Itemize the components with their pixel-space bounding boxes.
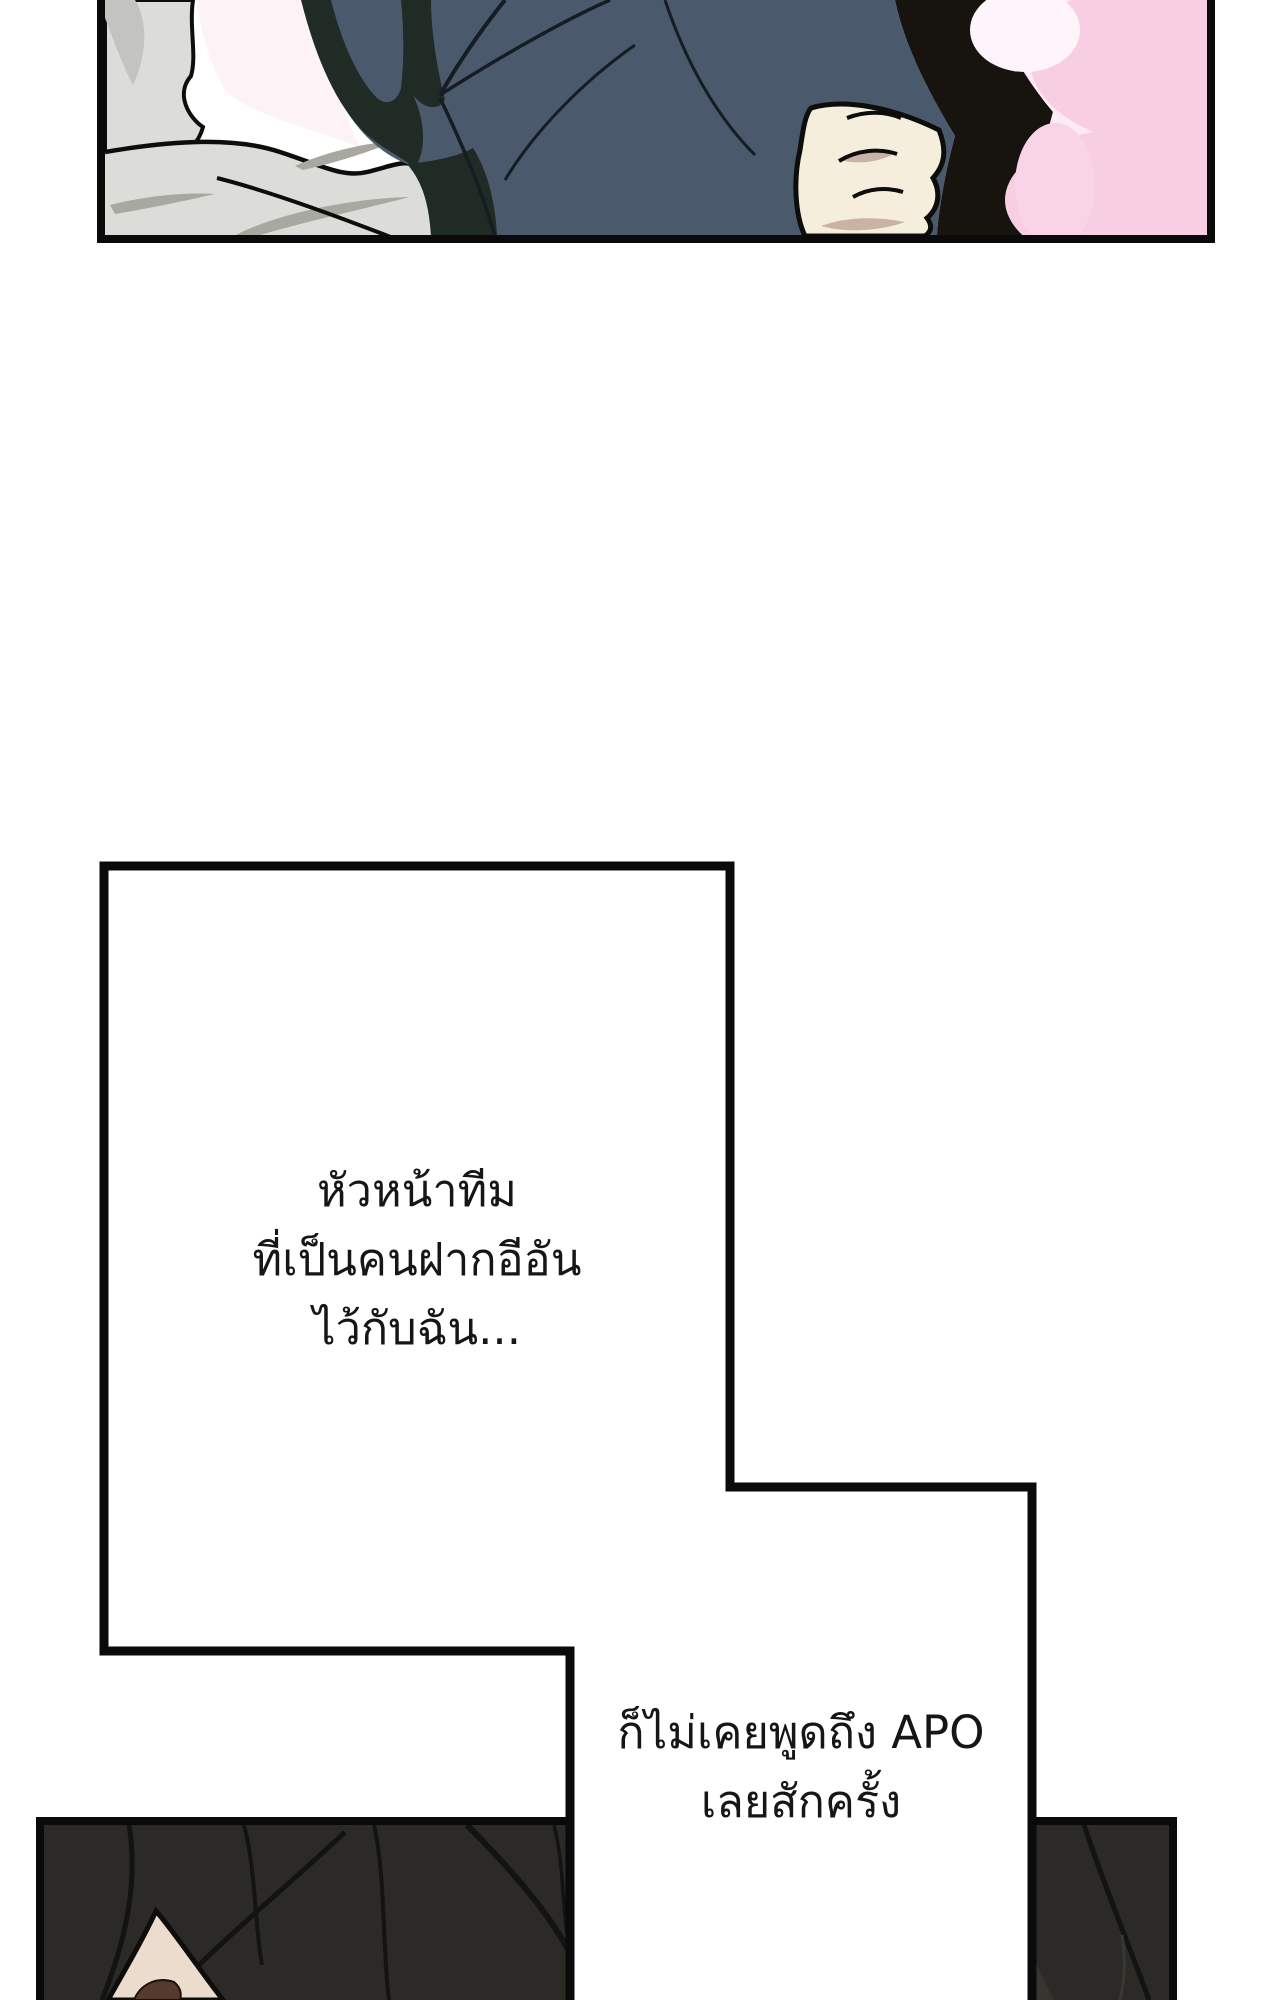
comic-page: หัวหน้าทีม ที่เป็นคนฝากอีอัน ไว้กับฉัน..… [0,0,1280,2000]
monologue-line: ไว้กับฉัน... [104,1294,730,1363]
panel-top [97,0,1215,243]
monologue-line: ที่เป็นคนฝากอีอัน [104,1225,730,1294]
panel-bottom [36,1817,1177,2000]
top-panel-illustration [105,0,1207,235]
bottom-panel-illustration [44,1825,1169,2000]
monologue-block-2: ก็ไม่เคยพูดถึง APO เลยสักครั้ง [570,1698,1032,1836]
monologue-line: เลยสักครั้ง [570,1767,1032,1836]
monologue-line: ก็ไม่เคยพูดถึง APO [570,1698,1032,1767]
clenched-fist [796,104,944,235]
monologue-line: หัวหน้าทีม [104,1156,730,1225]
monologue-block-1: หัวหน้าทีม ที่เป็นคนฝากอีอัน ไว้กับฉัน..… [104,1156,730,1363]
